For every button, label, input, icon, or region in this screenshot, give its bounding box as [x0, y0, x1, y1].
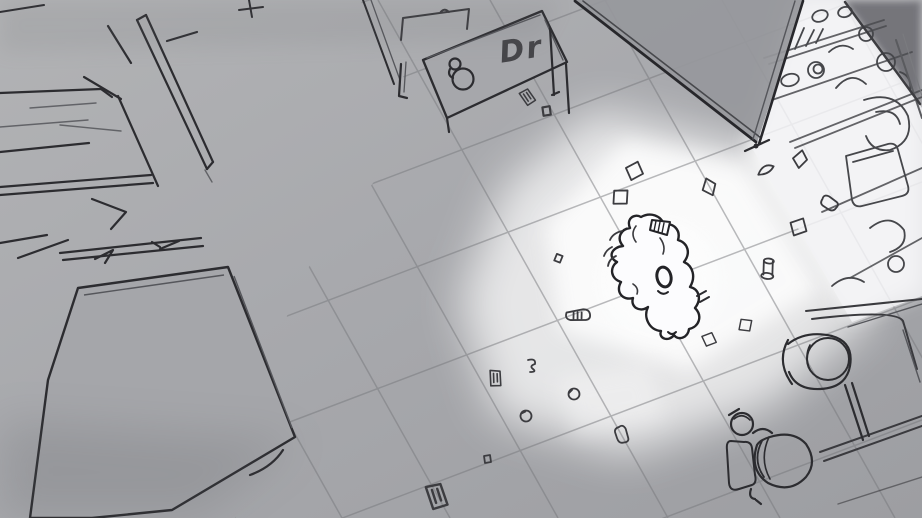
storyboard-sketch: Dr — [0, 0, 922, 518]
sketch-svg: Dr — [0, 0, 922, 518]
